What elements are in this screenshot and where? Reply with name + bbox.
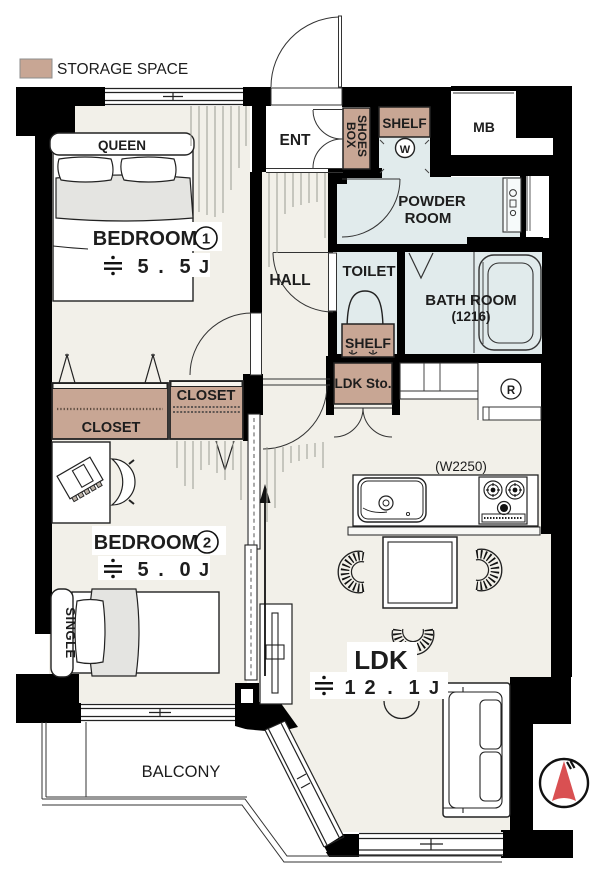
svg-text:2: 2 xyxy=(364,677,375,699)
svg-text:STORAGE SPACE: STORAGE SPACE xyxy=(57,61,188,78)
svg-text:.: . xyxy=(158,256,164,278)
svg-text:LDK: LDK xyxy=(354,645,408,675)
svg-text:CLOSET: CLOSET xyxy=(82,420,141,436)
svg-text:MB: MB xyxy=(473,119,495,135)
svg-text:.: . xyxy=(387,677,393,699)
svg-text:5: 5 xyxy=(137,559,148,581)
svg-text:5: 5 xyxy=(179,256,190,278)
svg-text:LDK Sto.: LDK Sto. xyxy=(335,376,392,391)
svg-text:BALCONY: BALCONY xyxy=(142,763,221,781)
svg-text:(1216): (1216) xyxy=(451,309,490,324)
svg-text:CLOSET: CLOSET xyxy=(177,388,236,404)
svg-text:.: . xyxy=(158,559,164,581)
svg-text:J: J xyxy=(199,560,209,580)
svg-text:BATH ROOM: BATH ROOM xyxy=(425,292,516,309)
svg-text:1: 1 xyxy=(408,677,419,699)
svg-text:HALL: HALL xyxy=(269,272,310,289)
svg-text:(W2250): (W2250) xyxy=(435,459,487,474)
svg-text:BOX: BOX xyxy=(344,122,358,148)
svg-text:J: J xyxy=(429,678,439,698)
svg-text:1: 1 xyxy=(202,231,210,248)
svg-text:SHELF: SHELF xyxy=(382,116,426,131)
svg-text:0: 0 xyxy=(179,559,190,581)
svg-text:1: 1 xyxy=(344,677,355,699)
svg-text:W: W xyxy=(400,144,411,156)
svg-text:TOILET: TOILET xyxy=(342,263,395,280)
svg-text:BEDROOM: BEDROOM xyxy=(93,228,197,250)
svg-text:ROOM: ROOM xyxy=(405,210,452,227)
svg-text:SHELF: SHELF xyxy=(345,335,391,351)
svg-text:ENT: ENT xyxy=(280,132,312,149)
svg-text:5: 5 xyxy=(137,256,148,278)
svg-text:R: R xyxy=(507,385,516,397)
svg-text:POWDER: POWDER xyxy=(398,193,466,210)
svg-text:2: 2 xyxy=(203,535,211,552)
svg-text:BEDROOM: BEDROOM xyxy=(94,532,198,554)
svg-text:SINGLE: SINGLE xyxy=(63,607,78,658)
svg-text:J: J xyxy=(199,257,209,277)
svg-text:QUEEN: QUEEN xyxy=(98,138,146,153)
